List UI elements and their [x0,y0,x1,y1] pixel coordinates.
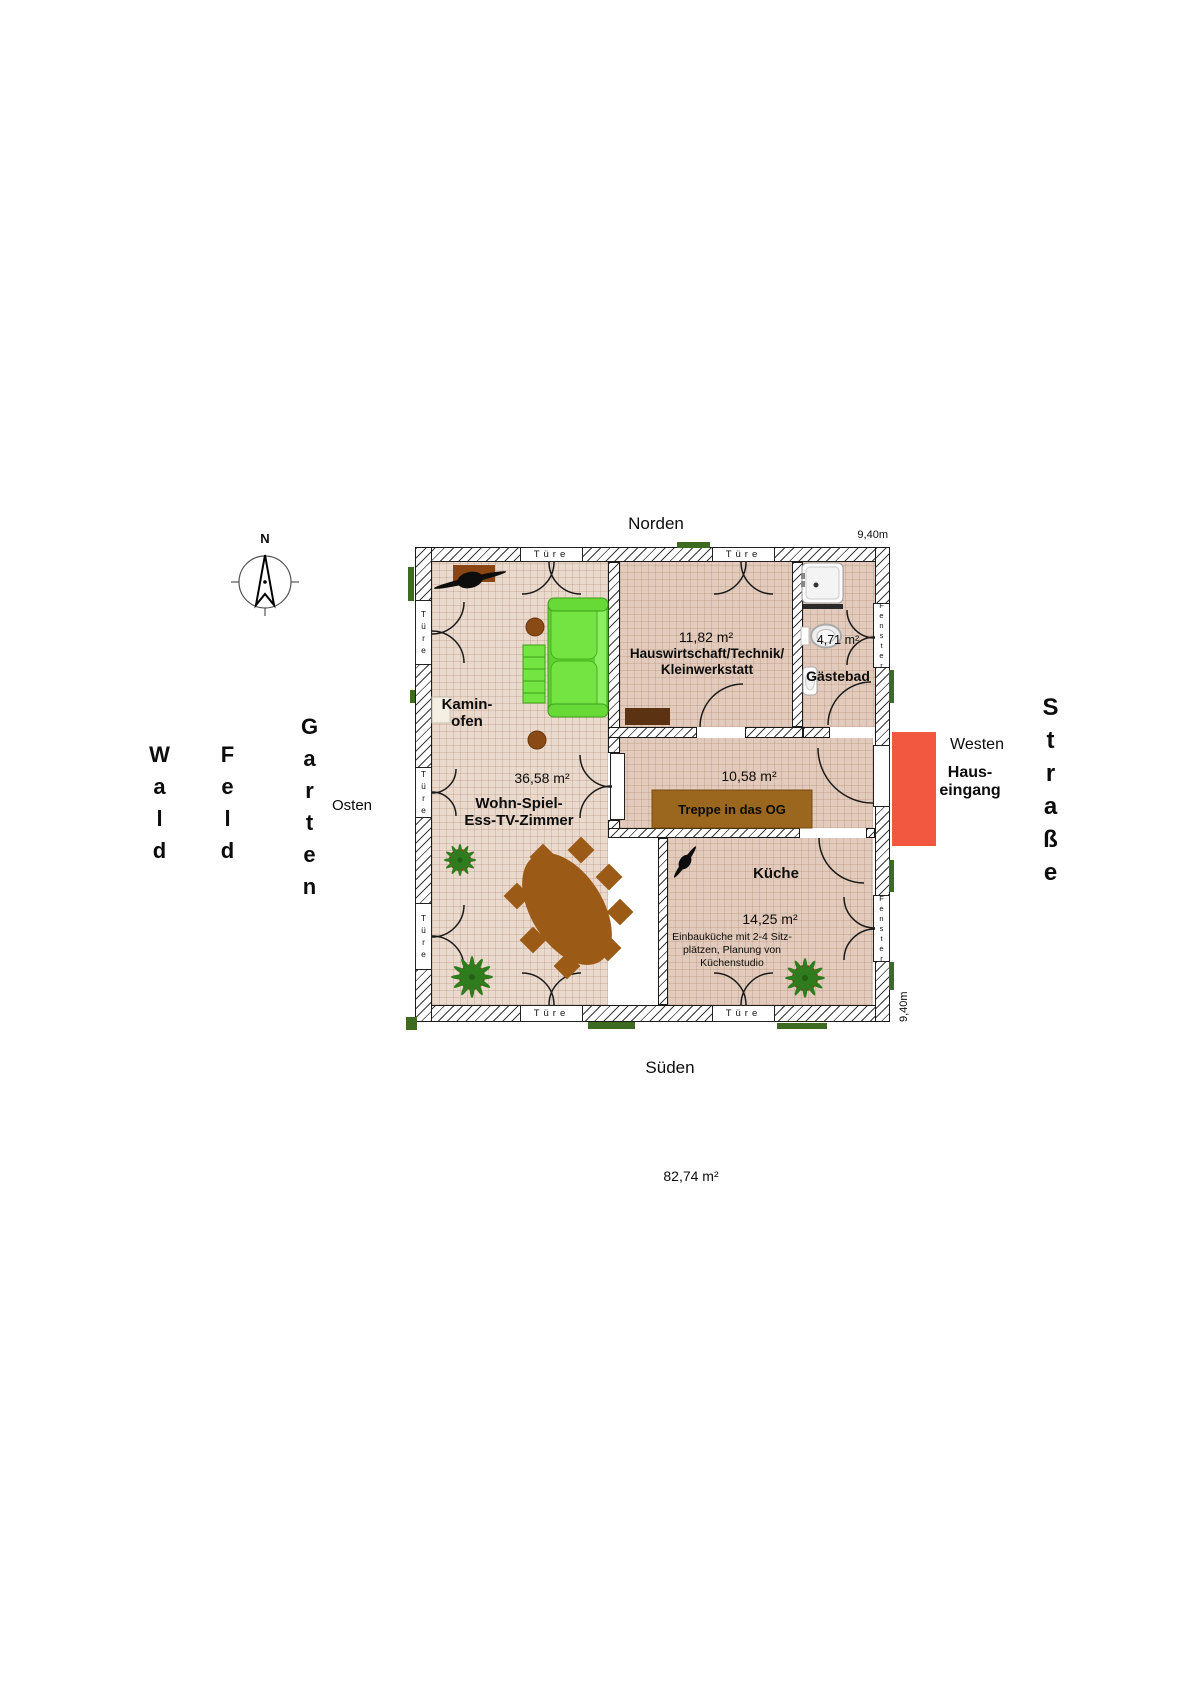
window-west-kitchen: Fenster [873,895,890,962]
door-label: Türe [419,769,429,817]
compass-north-letter: N [255,531,275,546]
wall-north [415,547,890,562]
hall-area: 10,58 m² [699,768,799,784]
front-door-opening [873,745,890,807]
floor-plan: Türe Türe Türe Türe Türe Türe Türe Fenst… [415,547,890,1022]
wall-living-utility [608,562,620,753]
direction-east: Osten [317,797,387,814]
wall-bath-hall [803,727,830,738]
wall-utility-hall-a [608,727,697,738]
door-label: Türe [726,1008,762,1019]
surrounding-feld: Feld [214,742,240,870]
surrounding-wald: Wald [146,742,172,870]
kitchen-name: Küche [736,865,816,882]
window-west-bath: Fenster [873,603,890,668]
total-area: 82,74 m² [631,1168,751,1184]
stairs-label: Treppe in das OG [652,790,812,828]
wall-utility-hall-b [745,727,803,738]
wall-utility-bath [792,562,803,727]
dimension-top: 9,40m [840,529,888,541]
door-label: Türe [534,1008,570,1019]
surrounding-garten: Garten [296,714,322,906]
wall-south [415,1005,890,1022]
entrance-label-line2: eingang [925,782,1015,800]
floor-plan-page: N Norden Süden Osten Westen Wald Feld Ga… [0,0,1202,1700]
fireplace-label-line1: Kamin- [433,696,501,713]
direction-north: Norden [596,514,716,534]
kitchen-note-line2: plätzen, Planung von [654,944,810,956]
wall-hall-kitchen-b [866,828,875,838]
living-name-line1: Wohn-Spiel- [449,795,589,812]
kitchen-area: 14,25 m² [722,911,818,927]
bath-area: 4,71 m² [805,633,871,647]
living-area: 36,58 m² [492,770,592,786]
direction-south: Süden [610,1058,730,1078]
door-label: Türe [419,609,429,657]
door-east-living-3: Türe [415,903,432,970]
door-south-living: Türe [520,1005,583,1022]
entrance-label-line1: Haus- [925,764,1015,782]
kitchen-note-line1: Einbauküche mit 2-4 Sitz- [654,931,810,943]
door-label: Türe [726,549,762,560]
direction-west: Westen [937,736,1017,754]
door-label: Türe [534,549,570,560]
utility-area: 11,82 m² [656,629,756,645]
dimension-right: 9,40m [898,991,910,1022]
compass-rose-icon [225,542,305,622]
surrounding-strasse: Straße [1036,694,1064,892]
kitchen-note-line3: Küchenstudio [654,957,810,969]
window-label: Fenster [877,601,886,671]
wall-hall-kitchen-a [608,828,800,838]
door-label: Türe [419,913,429,961]
door-south-kitchen: Türe [712,1005,775,1022]
fireplace-label-line2: ofen [433,713,501,730]
bath-name: Gästebad [802,668,874,684]
door-north-living: Türe [520,547,583,562]
living-name-line2: Ess-TV-Zimmer [449,812,589,829]
living-hall-opening [610,753,625,820]
utility-name-line2: Kleinwerkstatt [621,662,793,677]
door-east-living-1: Türe [415,600,432,665]
window-label: Fenster [877,894,886,964]
utility-name-line1: Hauswirtschaft/Technik/ [621,646,793,661]
door-north-utility: Türe [712,547,775,562]
wall-living-kitchen [658,838,668,1005]
door-east-living-2: Türe [415,767,432,818]
